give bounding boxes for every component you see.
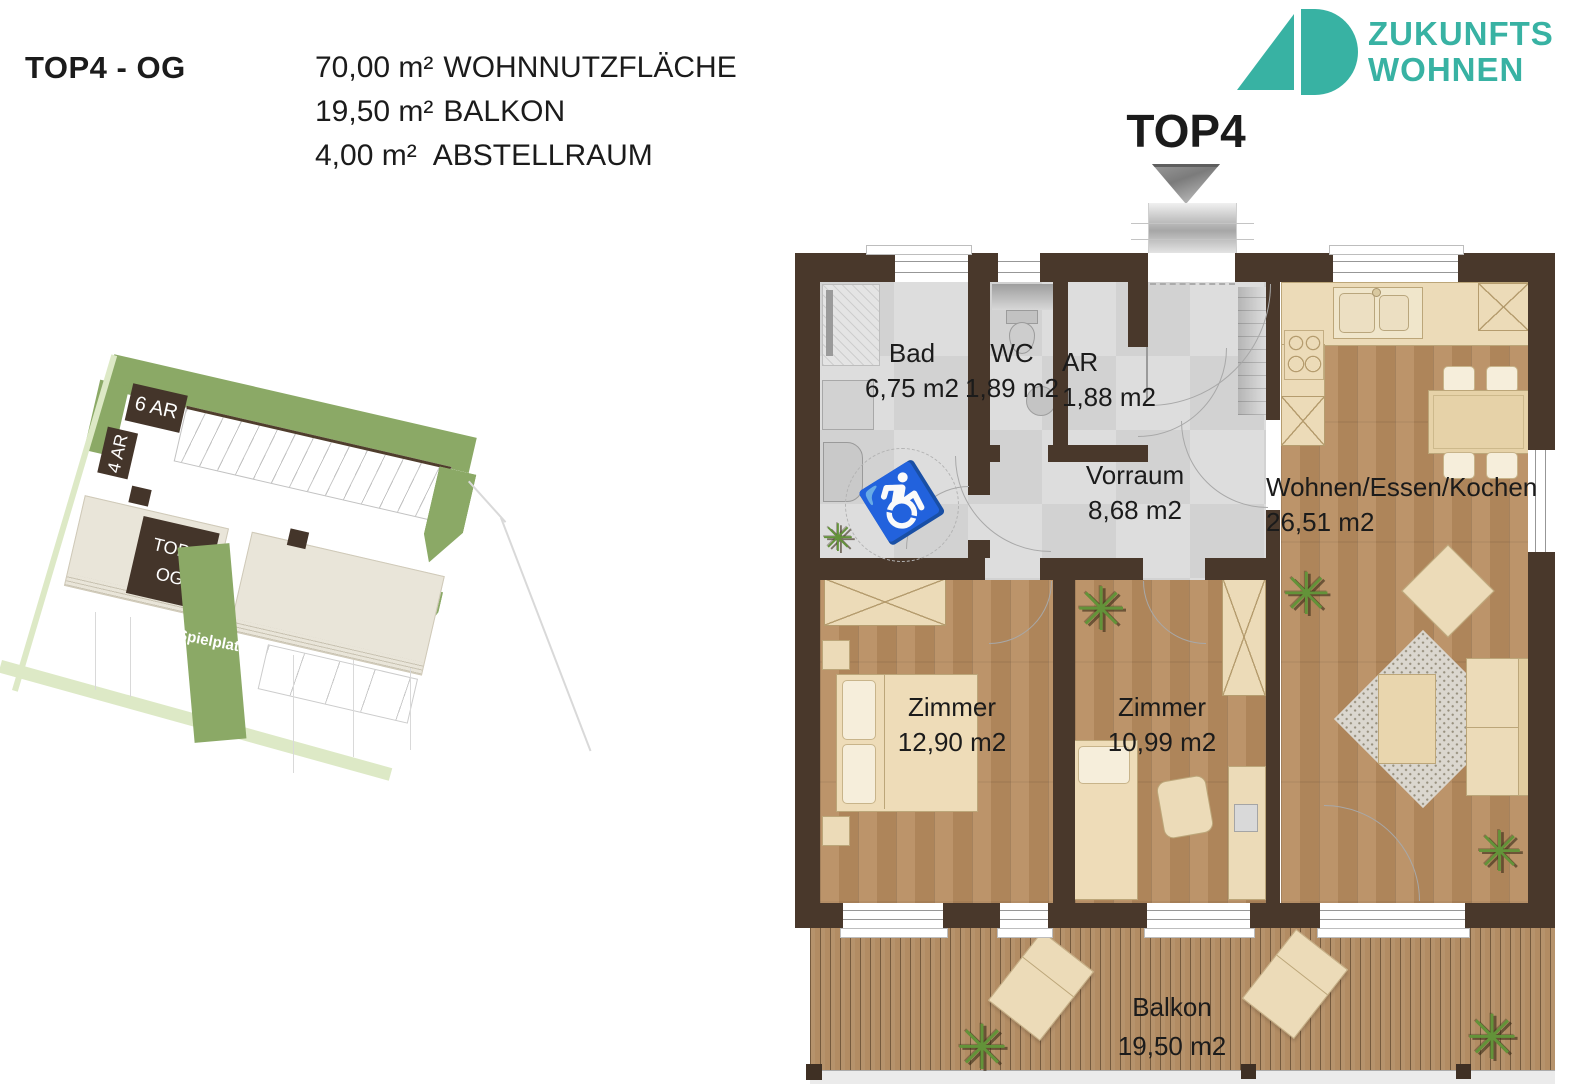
site-boundary-line — [468, 481, 506, 523]
wall-segment — [1266, 510, 1280, 903]
area-summary: 70,00 m²WOHNNUTZFLÄCHE 19,50 m²BALKON 4,… — [315, 46, 737, 178]
wall-segment — [968, 540, 990, 558]
room-label-zimmer-1: Zimmer12,90 m2 — [898, 690, 1006, 760]
wardrobe — [824, 578, 946, 626]
plant-icon: ✳ — [1476, 824, 1523, 880]
wall-segment — [943, 903, 1000, 928]
window-sill — [840, 928, 948, 938]
coffee-table — [1378, 674, 1436, 764]
wall-segment — [1250, 903, 1320, 928]
unit-title: TOP4 — [1126, 104, 1245, 158]
wall-segment — [795, 903, 843, 928]
entrance-walkway — [1148, 203, 1237, 253]
site-lot-line — [130, 617, 131, 697]
wall-segment — [1053, 580, 1075, 903]
desk — [1228, 766, 1266, 900]
site-lot-line — [293, 655, 294, 773]
wall-segment — [1528, 253, 1555, 450]
balcony-post — [1241, 1064, 1256, 1079]
plant-icon: ✳ — [1282, 566, 1331, 624]
sink-basin — [1379, 295, 1409, 331]
wall-segment — [1205, 558, 1266, 580]
window-sill — [866, 245, 972, 255]
site-dark-block — [128, 486, 151, 507]
wall-segment — [968, 253, 998, 282]
area-line-abstellraum: 4,00 m²ABSTELLRAUM — [315, 134, 737, 178]
fridge-x — [1478, 283, 1529, 331]
wall-segment — [1465, 903, 1555, 928]
page-title: TOP4 - OG — [25, 50, 186, 86]
window — [998, 253, 1040, 282]
kitchen-cabinet-x — [1281, 396, 1325, 446]
site-lot-line — [410, 668, 411, 750]
balcony-door — [1000, 903, 1048, 928]
wall-segment — [1040, 253, 1148, 282]
entrance-door-opening — [1148, 253, 1235, 282]
window-sill — [1317, 928, 1470, 938]
room-label-wohnen: Wohnen/Essen/Kochen26,51 m2 — [1266, 470, 1537, 540]
window-sill — [997, 928, 1053, 938]
wheelchair-icon: ♿ — [845, 448, 959, 562]
window-sill — [1144, 928, 1255, 938]
plant-icon: ✳ — [1076, 580, 1126, 640]
blanket-line — [884, 675, 885, 809]
site-lot-line — [353, 660, 354, 757]
stove-icon — [1284, 330, 1324, 380]
faucet-icon — [1372, 288, 1381, 297]
window — [1147, 903, 1250, 928]
wardrobe — [1222, 578, 1266, 696]
balcony-post — [806, 1064, 822, 1080]
wall-segment — [1528, 552, 1555, 928]
area-line-wohnnutzflaeche: 70,00 m²WOHNNUTZFLÄCHE — [315, 46, 737, 90]
window — [895, 253, 968, 282]
laptop-icon — [1234, 804, 1258, 832]
sofa — [1466, 658, 1529, 796]
balcony-door — [1320, 903, 1465, 928]
site-boundary-line — [500, 517, 591, 751]
site-building-right — [229, 532, 445, 676]
wall-segment — [795, 253, 820, 928]
window-sill — [1329, 245, 1464, 255]
window — [843, 903, 943, 928]
wc-shelf — [992, 284, 1053, 310]
entrance-arrow-icon — [1152, 164, 1220, 204]
wall-segment — [1128, 282, 1148, 347]
room-label-zimmer-2: Zimmer10,99 m2 — [1108, 690, 1216, 760]
logo-triangle-icon — [1237, 14, 1294, 90]
pillow — [842, 680, 876, 740]
nightstand — [822, 640, 850, 670]
room-label-ar: AR1,88 m2 — [1062, 345, 1156, 415]
dining-chair — [1486, 366, 1518, 393]
room-label-wc: WC1,89 m2 — [965, 336, 1059, 406]
area-line-balkon: 19,50 m²BALKON — [315, 90, 737, 134]
room-label-vorraum: Vorraum8,68 m2 — [1086, 458, 1184, 528]
room-label-balkon: Balkon19,50 m2 — [1118, 988, 1226, 1066]
logo-wordmark: ZUKUNFTS WOHNEN — [1368, 16, 1554, 88]
room-label-bad: Bad6,75 m2 — [865, 336, 959, 406]
logo-halfcircle-icon — [1301, 9, 1358, 95]
nightstand — [822, 816, 850, 846]
shower-rail — [826, 290, 833, 356]
wall-segment — [1048, 903, 1147, 928]
pillow — [842, 744, 876, 804]
balcony-edge — [810, 1070, 1555, 1084]
dining-table — [1428, 390, 1529, 454]
sink-basin — [1339, 293, 1375, 333]
desk-chair — [1155, 774, 1214, 840]
wall-segment — [1235, 253, 1333, 282]
floorplan-sheet: TOP4 - OG 70,00 m²WOHNNUTZFLÄCHE 19,50 m… — [0, 0, 1575, 1084]
window — [1333, 253, 1458, 282]
site-lot-line — [95, 612, 96, 690]
plant-icon: ✳ — [1466, 1008, 1518, 1070]
dining-chair — [1443, 366, 1475, 393]
plant-icon: ✳ — [956, 1018, 1008, 1080]
plant-icon: ✳ — [822, 520, 854, 558]
